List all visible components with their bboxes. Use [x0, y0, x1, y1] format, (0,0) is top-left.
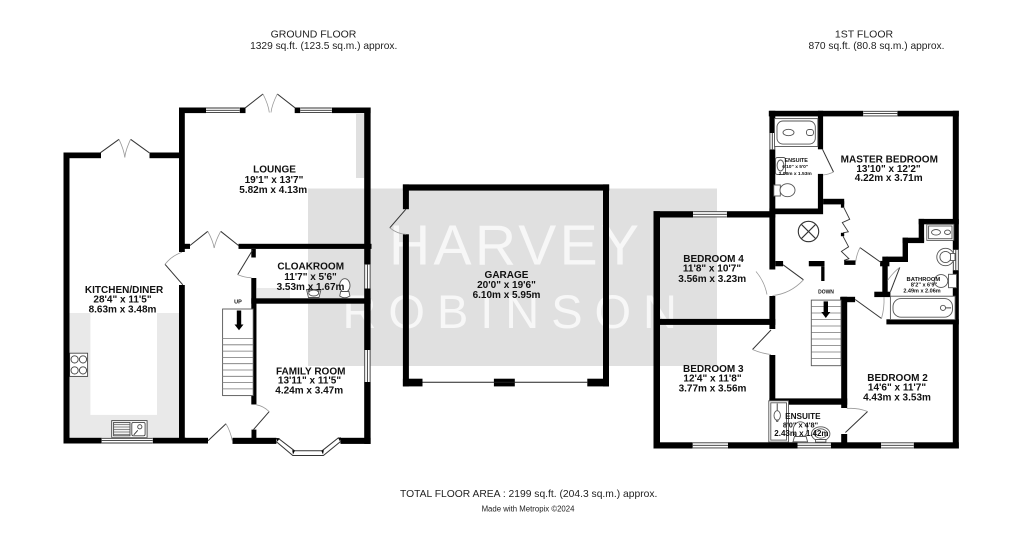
svg-text:2.08m x 1.53m: 2.08m x 1.53m: [779, 171, 813, 177]
svg-text:1329 sq.ft. (123.5 sq.m.) appr: 1329 sq.ft. (123.5 sq.m.) approx.: [250, 41, 397, 52]
svg-text:HARVEY: HARVEY: [389, 214, 639, 278]
svg-text:CLOAKROOM: CLOAKROOM: [277, 262, 344, 273]
svg-text:5.82m x 4.13m: 5.82m x 4.13m: [239, 185, 307, 196]
svg-text:6'10" x 5'0": 6'10" x 5'0": [782, 164, 808, 170]
svg-text:2.43m x 1.42m: 2.43m x 1.42m: [774, 429, 828, 438]
svg-text:2.49m x 2.06m: 2.49m x 2.06m: [903, 288, 940, 294]
svg-text:1ST FLOOR: 1ST FLOOR: [835, 29, 894, 41]
svg-text:4.24m x 3.47m: 4.24m x 3.47m: [275, 386, 343, 397]
svg-text:3.77m x 3.56m: 3.77m x 3.56m: [679, 383, 747, 394]
svg-text:Made with Metropix ©2024: Made with Metropix ©2024: [482, 505, 576, 514]
svg-text:870 sq.ft. (80.8 sq.m.) approx: 870 sq.ft. (80.8 sq.m.) approx.: [809, 41, 945, 52]
svg-text:4.22m x 3.71m: 4.22m x 3.71m: [855, 173, 923, 184]
svg-text:DOWN: DOWN: [818, 290, 834, 296]
svg-text:GROUND FLOOR: GROUND FLOOR: [271, 29, 357, 41]
svg-text:UP: UP: [234, 299, 242, 305]
svg-text:ENSUITE: ENSUITE: [785, 158, 809, 164]
svg-text:3.53m x 1.67m: 3.53m x 1.67m: [277, 282, 345, 293]
svg-text:4.43m x 3.53m: 4.43m x 3.53m: [863, 393, 931, 404]
svg-text:8.63m x 3.48m: 8.63m x 3.48m: [89, 304, 157, 315]
svg-text:3.56m x 3.23m: 3.56m x 3.23m: [678, 274, 746, 285]
svg-text:TOTAL FLOOR AREA : 2199 sq.ft.: TOTAL FLOOR AREA : 2199 sq.ft. (204.3 sq…: [400, 489, 657, 500]
svg-text:6.10m x 5.95m: 6.10m x 5.95m: [473, 290, 541, 301]
